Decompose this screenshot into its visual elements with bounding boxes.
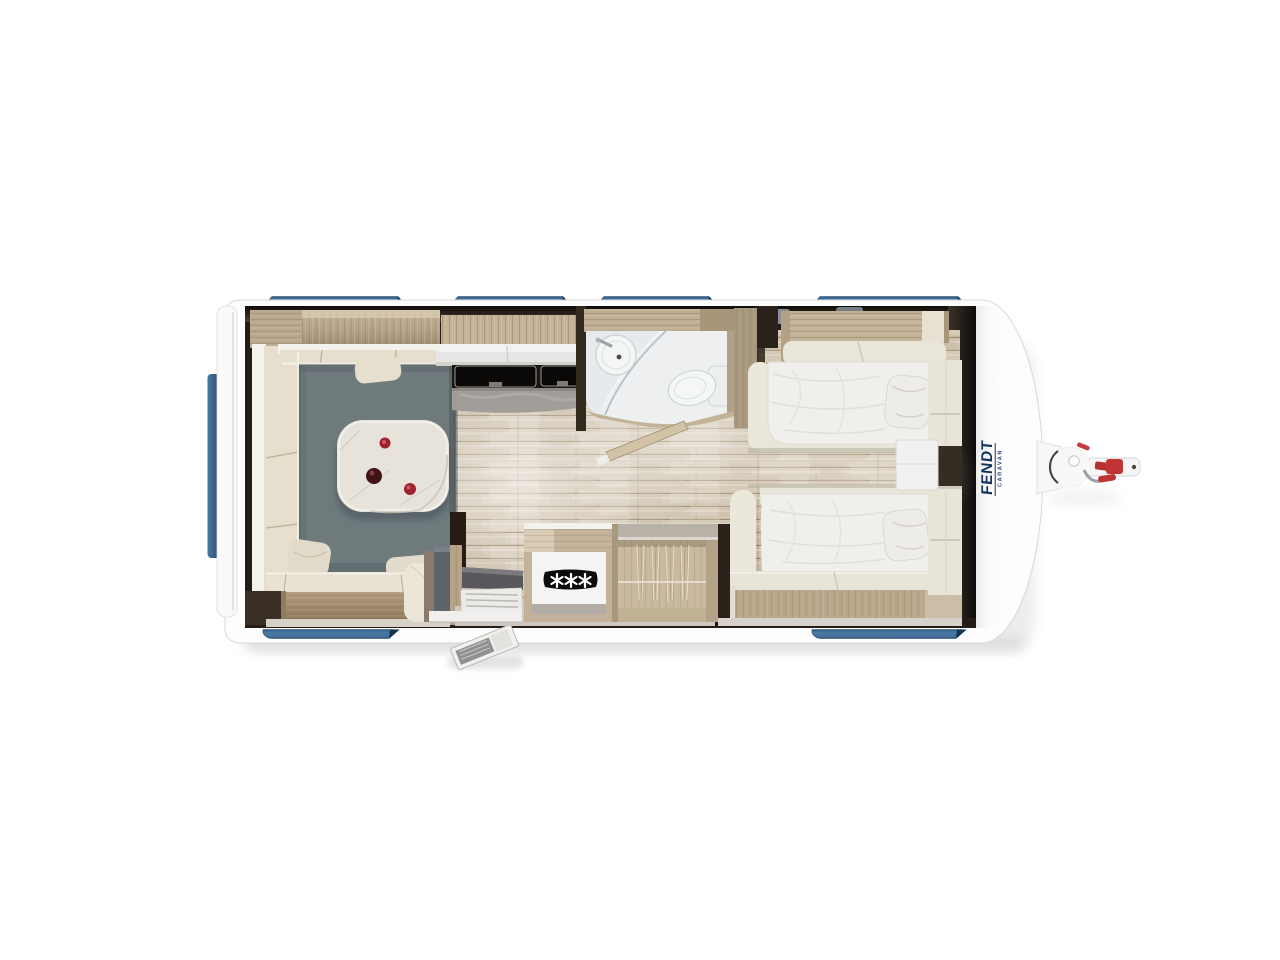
- svg-text:CARAVAN: CARAVAN: [998, 449, 1004, 487]
- svg-text:FENDT: FENDT: [979, 439, 996, 495]
